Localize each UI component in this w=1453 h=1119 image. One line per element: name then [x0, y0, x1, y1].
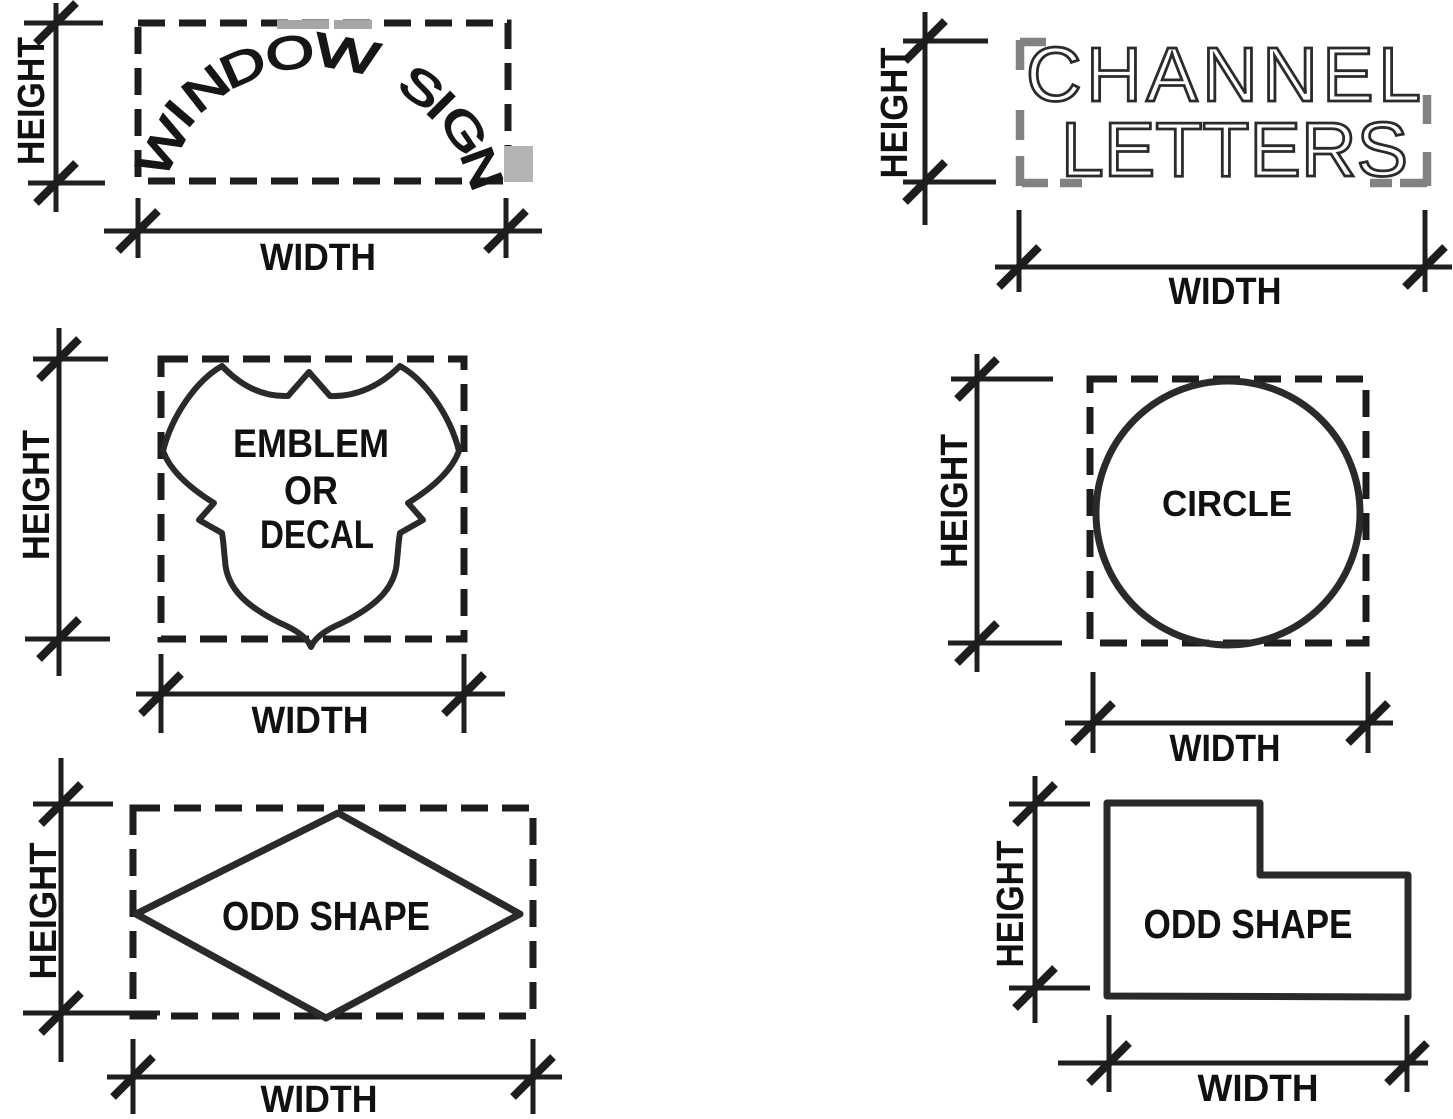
svg-text:HEIGHT: HEIGHT: [990, 841, 1032, 968]
svg-text:HEIGHT: HEIGHT: [23, 843, 65, 980]
svg-text:CIRCLE: CIRCLE: [1162, 483, 1292, 524]
svg-text:WIDTH: WIDTH: [1169, 271, 1282, 313]
svg-text:HEIGHT: HEIGHT: [874, 48, 916, 179]
svg-text:HEIGHT: HEIGHT: [934, 434, 976, 568]
svg-text:LETTERS: LETTERS: [1061, 107, 1408, 193]
svg-text:ODD SHAPE: ODD SHAPE: [1144, 901, 1353, 947]
svg-text:WIDTH: WIDTH: [261, 1079, 378, 1119]
svg-text:WIDTH: WIDTH: [1198, 1068, 1319, 1110]
svg-text:HEIGHT: HEIGHT: [16, 430, 58, 560]
svg-text:HEIGHT: HEIGHT: [11, 37, 53, 165]
svg-text:DECAL: DECAL: [260, 513, 374, 557]
svg-text:ODD SHAPE: ODD SHAPE: [222, 893, 430, 939]
svg-text:WIDTH: WIDTH: [252, 700, 369, 742]
svg-text:WIDTH: WIDTH: [260, 237, 376, 279]
svg-text:WIDTH: WIDTH: [1170, 728, 1281, 770]
svg-text:OR: OR: [284, 469, 338, 513]
svg-text:EMBLEM: EMBLEM: [233, 422, 389, 466]
svg-text:CHANNEL: CHANNEL: [1026, 32, 1421, 118]
